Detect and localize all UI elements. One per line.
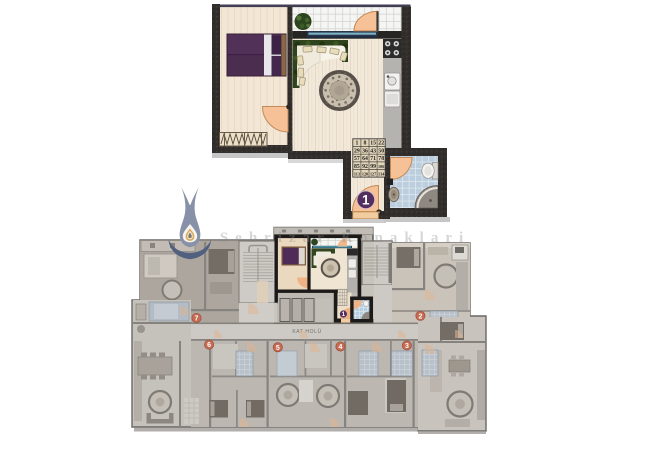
svg-text:71: 71	[370, 156, 376, 162]
svg-text:1: 1	[362, 193, 370, 208]
svg-text:134: 134	[378, 171, 385, 176]
svg-text:Sehrizar Konaklari: Sehrizar Konaklari	[220, 230, 470, 246]
svg-text:36: 36	[362, 148, 368, 154]
svg-text:43: 43	[370, 148, 376, 154]
svg-text:50: 50	[378, 148, 384, 154]
svg-text:113: 113	[354, 171, 360, 176]
svg-text:29: 29	[354, 148, 360, 154]
svg-text:106: 106	[378, 164, 384, 169]
svg-text:8: 8	[364, 141, 367, 147]
svg-text:78: 78	[378, 156, 384, 162]
svg-text:1: 1	[355, 141, 358, 147]
svg-text:22: 22	[378, 141, 384, 147]
svg-text:92: 92	[362, 164, 368, 170]
svg-text:85: 85	[354, 164, 360, 170]
svg-text:99: 99	[370, 164, 376, 170]
svg-text:15: 15	[370, 141, 376, 147]
svg-text:64: 64	[362, 156, 368, 162]
svg-text:57: 57	[354, 156, 360, 162]
svg-text:120: 120	[362, 171, 368, 176]
svg-text:127: 127	[370, 171, 376, 176]
